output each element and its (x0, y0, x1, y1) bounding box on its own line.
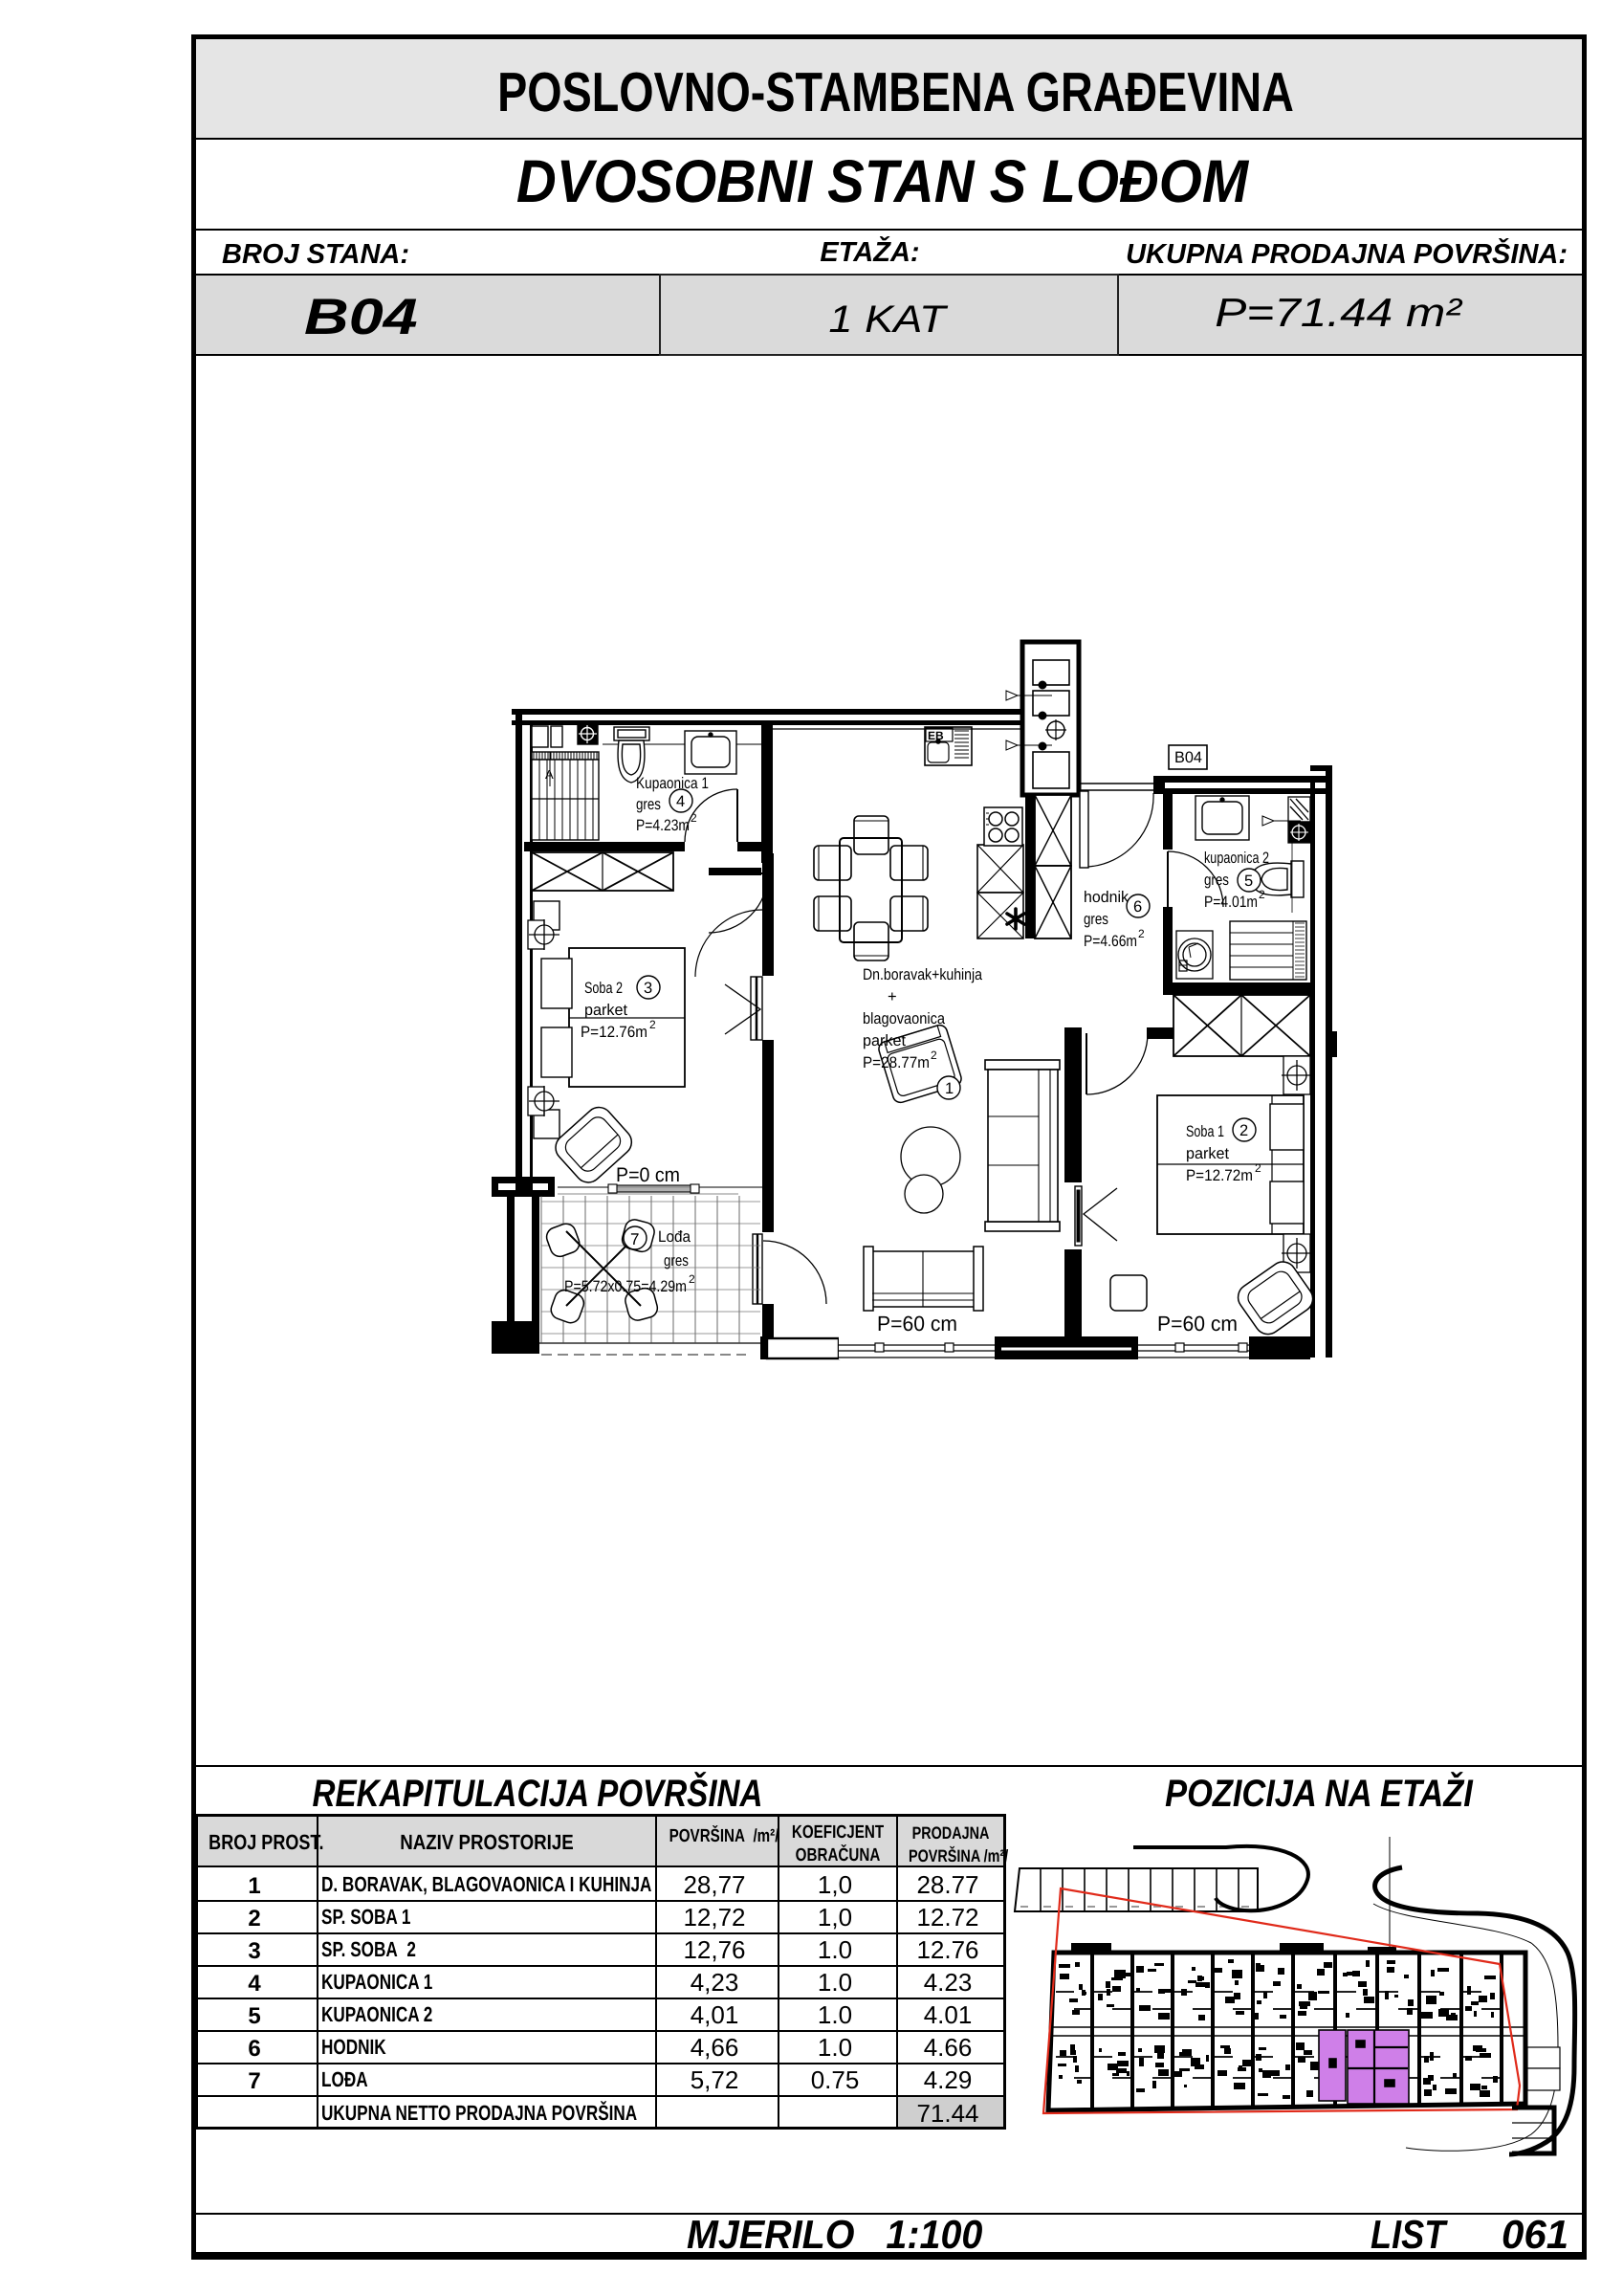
svg-text:P=12.76m: P=12.76m (581, 1024, 647, 1041)
svg-text:P=28.77m: P=28.77m (863, 1054, 930, 1071)
svg-text:7: 7 (630, 1230, 639, 1248)
svg-text:blagovaonica: blagovaonica (863, 1010, 946, 1027)
svg-text:Dn.boravak+kuhinja: Dn.boravak+kuhinja (863, 966, 983, 983)
svg-text:2: 2 (1239, 1122, 1248, 1139)
svg-text:gres: gres (636, 796, 661, 813)
svg-text:P=5.72x0.75=4.29m: P=5.72x0.75=4.29m (564, 1278, 687, 1295)
svg-text:P=4.01m: P=4.01m (1204, 894, 1258, 911)
svg-text:2: 2 (689, 1272, 695, 1286)
svg-text:3: 3 (644, 980, 652, 997)
svg-text:4: 4 (676, 793, 685, 810)
svg-text:Soba 2: Soba 2 (584, 980, 623, 997)
svg-text:gres: gres (1084, 911, 1108, 928)
svg-text:Kupaonica 1: Kupaonica 1 (636, 775, 709, 792)
svg-text:P=60 cm: P=60 cm (877, 1312, 957, 1336)
svg-text:2: 2 (1259, 888, 1265, 901)
svg-text:2: 2 (931, 1049, 937, 1062)
svg-text:6: 6 (1133, 898, 1142, 916)
svg-text:1: 1 (945, 1080, 954, 1097)
svg-text:kupaonica 2: kupaonica 2 (1204, 850, 1269, 867)
svg-text:Lođa: Lođa (658, 1228, 691, 1246)
svg-text:gres: gres (664, 1252, 689, 1269)
svg-text:2: 2 (1138, 927, 1145, 940)
svg-text:P=4.23m: P=4.23m (636, 817, 690, 834)
svg-text:P=12.72m: P=12.72m (1186, 1167, 1253, 1184)
svg-text:parket: parket (584, 1002, 627, 1019)
svg-text:gres: gres (1204, 872, 1229, 889)
svg-text:parket: parket (863, 1032, 906, 1049)
svg-text:2: 2 (1255, 1161, 1261, 1175)
svg-text:+: + (888, 988, 897, 1005)
svg-text:2: 2 (691, 811, 697, 825)
svg-text:P=4.66m: P=4.66m (1084, 933, 1137, 950)
svg-text:B04: B04 (1174, 749, 1202, 766)
svg-text:Soba 1: Soba 1 (1186, 1123, 1224, 1140)
svg-text:P=0 cm: P=0 cm (616, 1164, 680, 1186)
svg-text:P=60 cm: P=60 cm (1157, 1312, 1238, 1336)
svg-text:hodnik: hodnik (1084, 889, 1130, 906)
svg-text:5: 5 (1244, 872, 1253, 890)
svg-text:2: 2 (649, 1018, 656, 1031)
svg-text:parket: parket (1186, 1145, 1229, 1162)
